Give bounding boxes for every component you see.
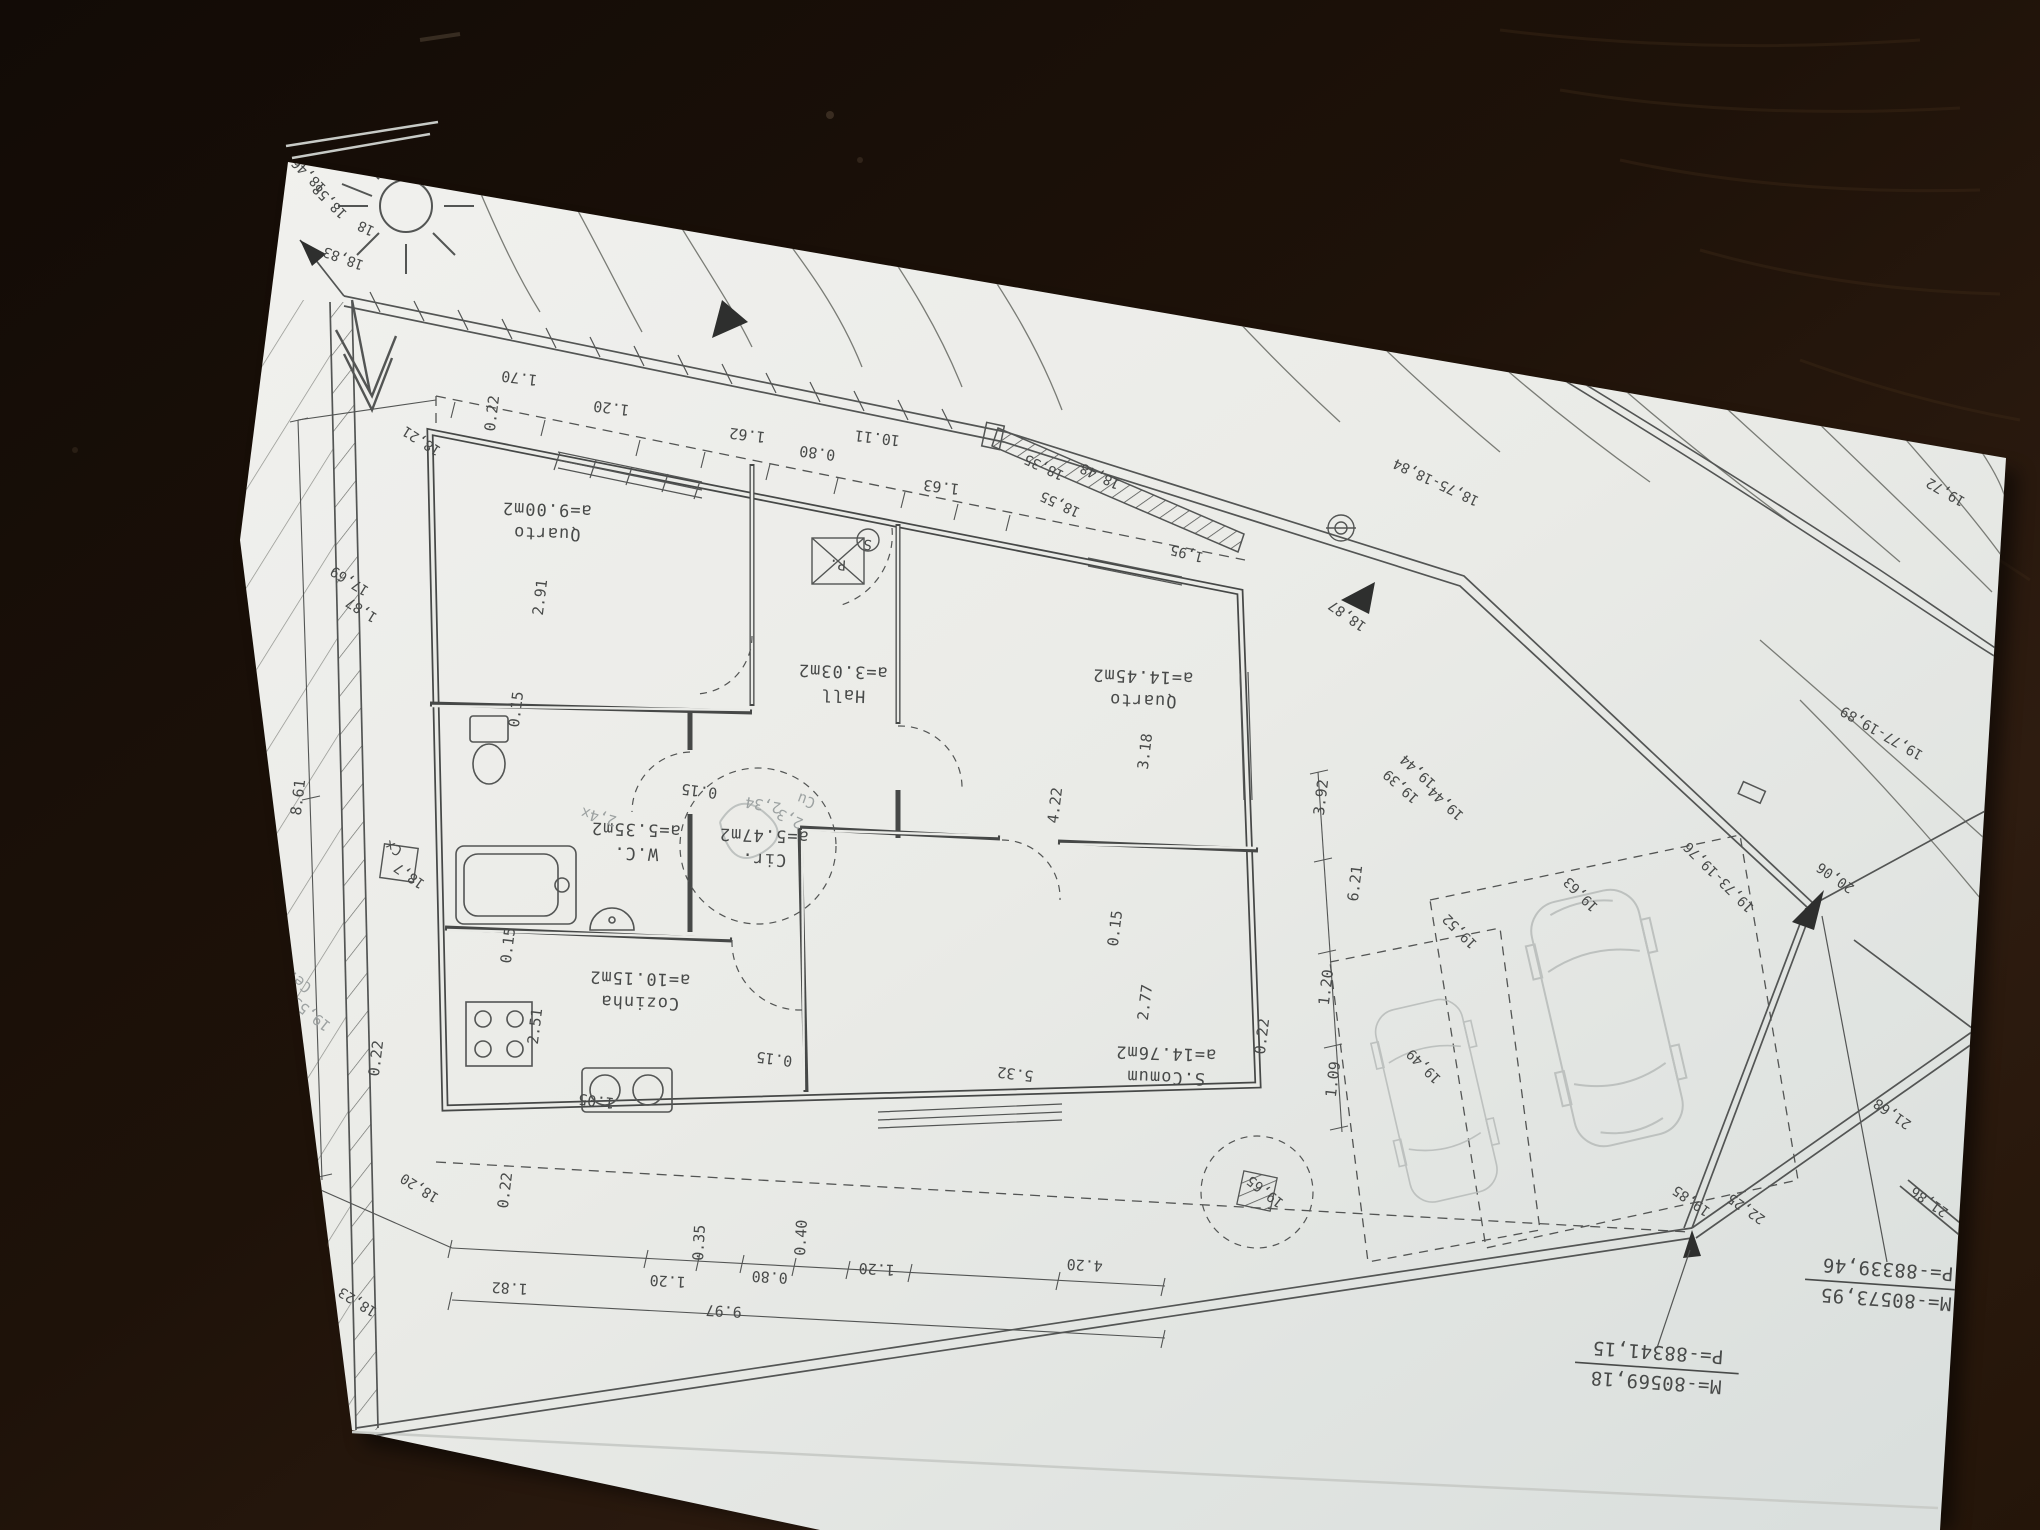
photo-of-floor-plan: a=9.00m2Quartoa=3.03m2Halla=14.45m2Quart… — [0, 0, 2040, 1530]
